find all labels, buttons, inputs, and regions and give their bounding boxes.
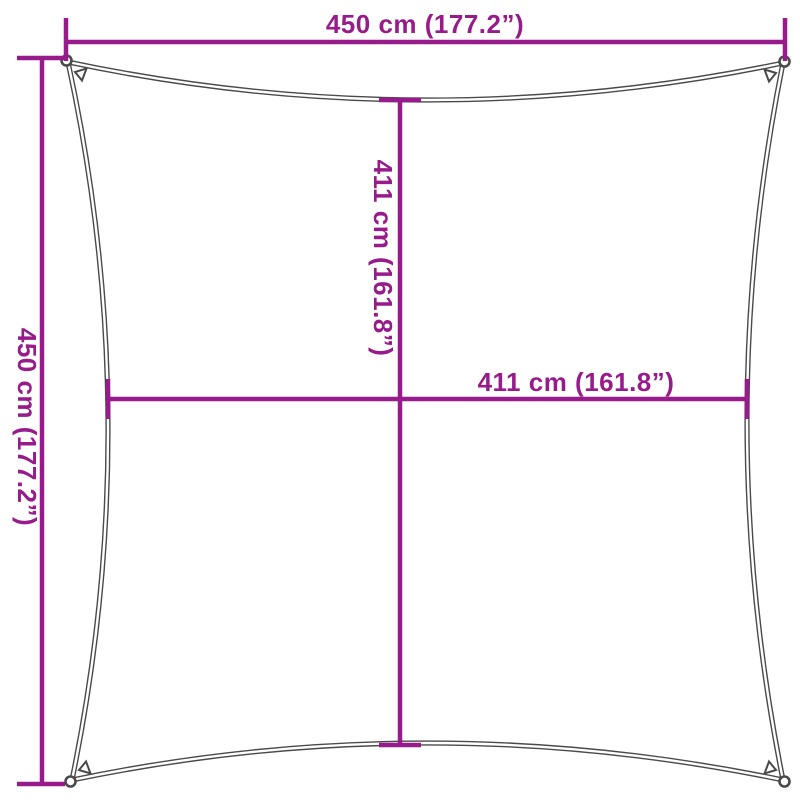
inner-vertical-dimension-label: 411 cm (161.8”) (368, 160, 398, 357)
left-dimension-label: 450 cm (177.2”) (12, 328, 42, 526)
sail-panel (68, 62, 783, 780)
inner-horizontal-dimension-label: 411 cm (161.8”) (478, 367, 675, 397)
product-dimension-diagram: 450 cm (177.2”) 450 cm (177.2”) 411 cm (… (0, 0, 800, 800)
diagram-canvas: 450 cm (177.2”) 450 cm (177.2”) 411 cm (… (0, 0, 800, 800)
top-dimension-label: 450 cm (177.2”) (326, 9, 524, 39)
shade-sail (62, 56, 790, 787)
